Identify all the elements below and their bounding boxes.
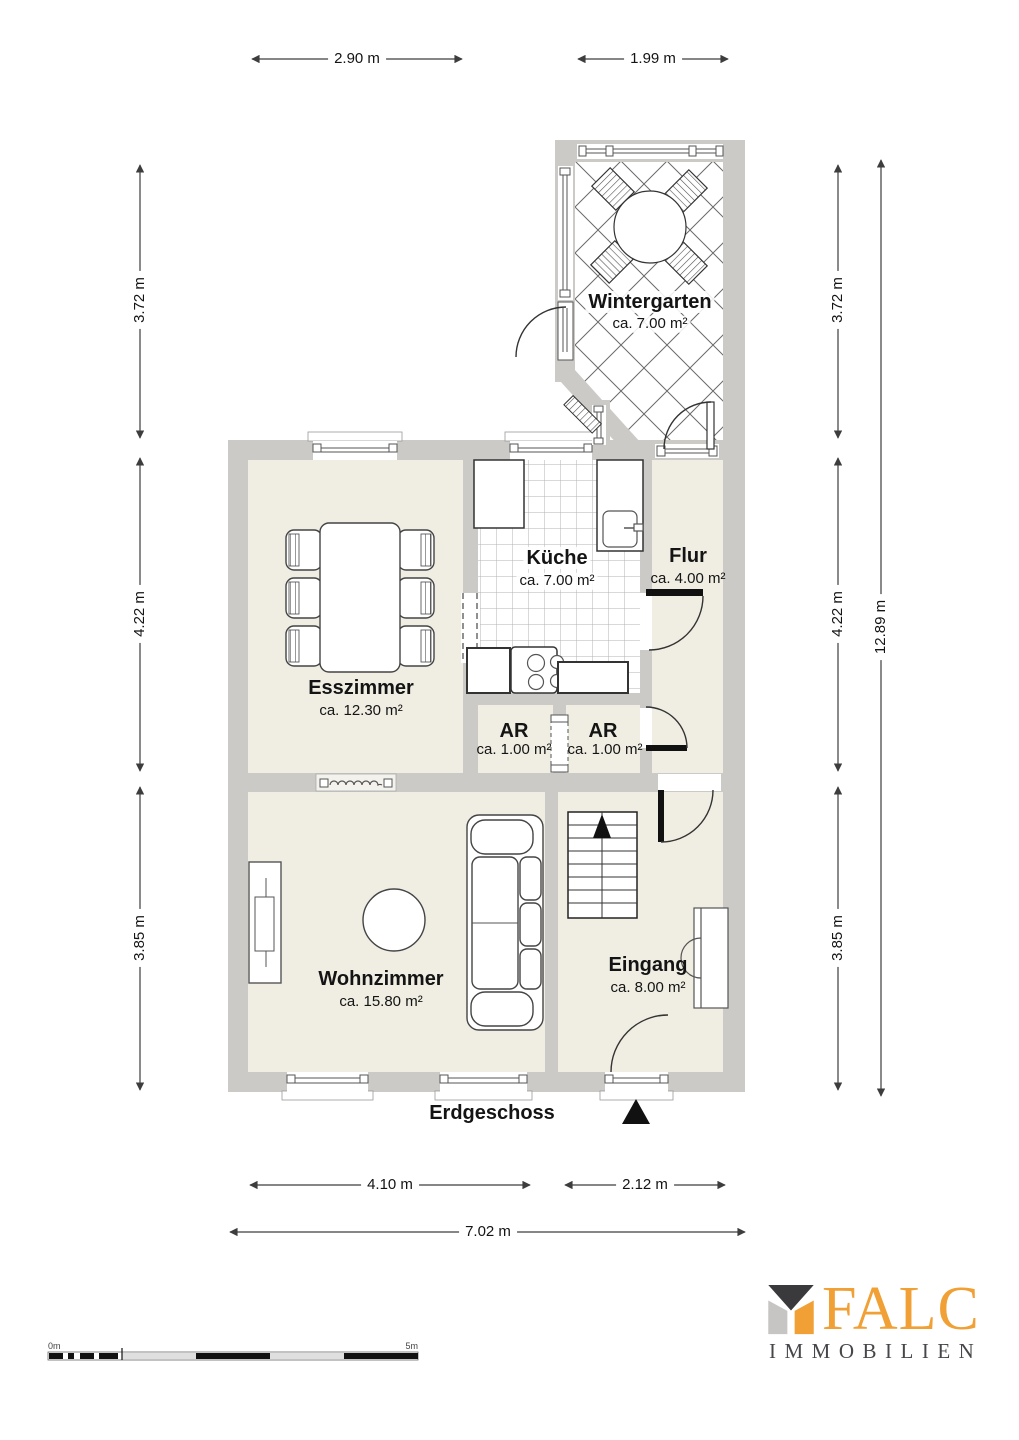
entrance-arrow (622, 1099, 650, 1124)
room-area-wintergarten: ca. 7.00 m² (609, 316, 690, 333)
dim-top-left: 2.90 m (328, 51, 386, 68)
ar-divider-door (551, 715, 568, 772)
dim-right-middle: 4.22 m (830, 585, 847, 643)
scale-start-label: 0m (48, 1341, 61, 1351)
room-label-wohnzimmer: Wohnzimmer (318, 968, 443, 990)
dim-bottom-total: 7.02 m (459, 1224, 517, 1241)
dim-left-lower: 3.85 m (132, 909, 149, 967)
room-area-flur: ca. 4.00 m² (650, 571, 725, 588)
room-label-eingang: Eingang (609, 954, 688, 976)
room-area-ar-left: ca. 1.00 m² (476, 742, 551, 759)
fridge (474, 460, 524, 528)
falc-logo-brand: FALC (822, 1278, 980, 1340)
room-area-wohnzimmer: ca. 15.80 m² (339, 994, 422, 1011)
floor-title: Erdgeschoss (429, 1102, 555, 1124)
dim-top-right: 1.99 m (624, 51, 682, 68)
dining-table (320, 523, 400, 672)
room-label-esszimmer: Esszimmer (308, 677, 414, 699)
dim-bottom-living: 4.10 m (361, 1177, 419, 1194)
room-label-ar-right: AR (589, 720, 618, 742)
falc-logo: FALC IMMOBILIEN (745, 1282, 995, 1377)
room-area-ar-right: ca. 1.00 m² (567, 742, 642, 759)
dim-right-upper: 3.72 m (830, 271, 847, 329)
esszimmer-furniture (286, 523, 434, 672)
room-label-kueche: Küche (523, 547, 590, 569)
scale-end-label: 5m (405, 1341, 418, 1351)
room-label-flur: Flur (669, 545, 707, 567)
staircase (568, 812, 637, 918)
round-table (614, 191, 686, 263)
room-area-eingang: ca. 8.00 m² (610, 980, 685, 997)
room-label-wintergarten: Wintergarten (585, 291, 714, 313)
dim-left-upper: 3.72 m (132, 271, 149, 329)
room-label-ar-left: AR (500, 720, 529, 742)
scale-bar (48, 1348, 418, 1360)
counter-left (467, 648, 510, 693)
radiator-symbol (316, 774, 396, 791)
dim-right-lower: 3.85 m (830, 909, 847, 967)
coffee-table (363, 889, 425, 951)
dim-left-middle: 4.22 m (132, 585, 149, 643)
floor-flur (652, 460, 723, 773)
falc-logo-subtitle: IMMOBILIEN (769, 1339, 982, 1364)
room-area-esszimmer: ca. 12.30 m² (319, 703, 402, 720)
room-area-kueche: ca. 7.00 m² (516, 573, 597, 590)
dim-bottom-entrance: 2.12 m (616, 1177, 674, 1194)
counter-right (558, 662, 628, 693)
sofa (467, 815, 543, 1030)
floorplan-page: 2.90 m 1.99 m 3.72 m 4.22 m 3.85 m 3.72 … (0, 0, 1019, 1440)
door-wintergarten-left (516, 302, 573, 360)
dim-right-total: 12.89 m (873, 594, 890, 660)
falc-logo-mark (768, 1285, 814, 1335)
